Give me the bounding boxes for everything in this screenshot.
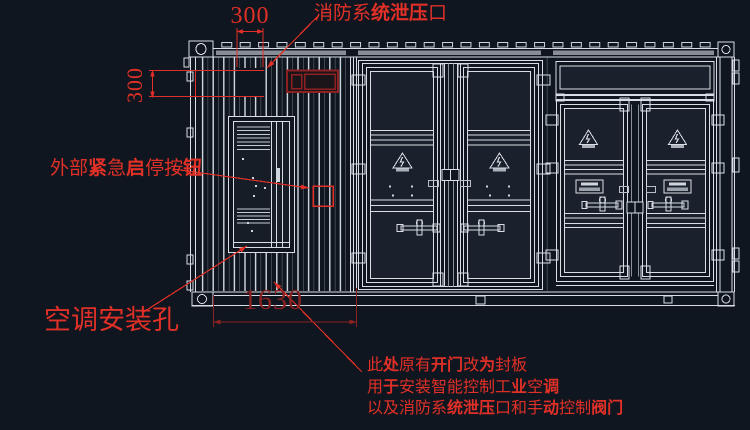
dimension-bottom-1630: 1630: [226, 286, 320, 315]
container-shell: [184, 41, 739, 306]
label-ac-install-hole: 空调安装孔: [44, 306, 179, 334]
label-plate-icon: [576, 180, 691, 193]
right-double-door: [546, 62, 724, 286]
dimension-left-300-wrap: 300: [114, 62, 156, 108]
cad-viewport: 300 消防系统泄压口 300 外部紧急启停按钮 空调安装孔 1630 此处原有…: [0, 0, 750, 430]
lock-box-icon: [442, 170, 459, 181]
note-block: 此处原有开门改为封板 用于安装智能控制工业空调 以及消防系统泄压口和手动控制阀门: [367, 355, 623, 420]
label-fire-relief-port: 消防系统泄压口: [314, 4, 447, 24]
relief-port-marking: [287, 71, 338, 93]
note-line-1: 此处原有开门改为封板: [367, 355, 623, 377]
relief-hole-cutout: [236, 68, 264, 97]
middle-double-door: [352, 61, 550, 290]
lock-box-icon: [627, 202, 643, 213]
note-line-3: 以及消防系统泄压口和手动控制阀门: [367, 398, 623, 420]
label-emergency-stop-button: 外部紧急启停按钮: [50, 159, 202, 179]
transom-panel: [560, 66, 710, 89]
dimension-left-300: 300: [123, 67, 146, 103]
dimension-top-300: 300: [228, 4, 272, 29]
note-line-2: 用于安装智能控制工业空调: [367, 377, 623, 399]
louver-handle-icon: [276, 168, 280, 182]
